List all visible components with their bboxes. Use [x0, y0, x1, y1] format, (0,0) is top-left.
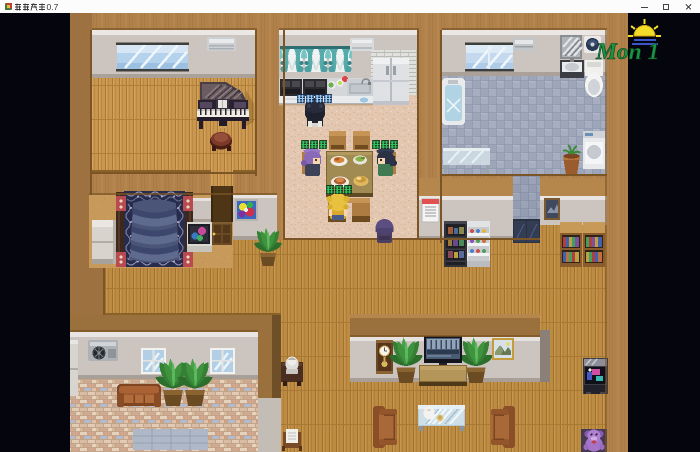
svg-text:0.7: 0.7: [47, 2, 59, 12]
svg-text:Mon 1: Mon 1: [595, 39, 659, 65]
